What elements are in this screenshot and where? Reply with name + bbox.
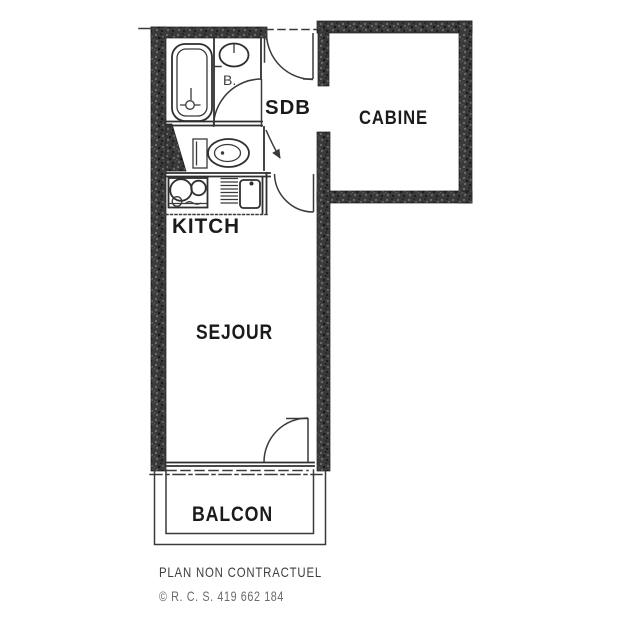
drainboard-icon	[221, 179, 239, 204]
floor-plan: SDB CABINE KITCH SEJOUR BALCON B. PLAN N…	[0, 0, 640, 640]
wall-right	[317, 132, 330, 471]
walls	[151, 21, 472, 471]
room-label-cabine: CABINE	[359, 108, 428, 129]
hall-sejour-door-swing	[275, 174, 314, 212]
disclaimer-text: PLAN NON CONTRACTUEL	[159, 564, 322, 580]
wall-top-bathroom	[151, 27, 267, 38]
room-label-balcon: BALCON	[192, 503, 273, 526]
wall-cabine-right	[459, 21, 472, 203]
wall-cabine-left-upper	[318, 30, 329, 86]
wall-cabine-bottom	[317, 191, 472, 203]
room-label-kitch: KITCH	[172, 215, 240, 238]
sink-icon	[240, 180, 260, 208]
wall-left	[151, 27, 166, 471]
partitions	[139, 29, 322, 475]
stove-icon	[169, 178, 208, 208]
sdb-door-swing	[214, 79, 262, 127]
entry-door-swing	[267, 33, 314, 80]
floor-plan-page: SDB CABINE KITCH SEJOUR BALCON B. PLAN N…	[0, 0, 640, 640]
bathtub-icon	[172, 44, 212, 121]
washbasin-icon	[220, 44, 249, 67]
copyright-text: © R. C. S. 419 662 184	[159, 588, 284, 604]
wall-cabine-top	[317, 21, 472, 33]
bath-annotation: B.	[223, 72, 236, 88]
room-label-sejour: SEJOUR	[196, 321, 273, 344]
room-label-sdb: SDB	[265, 97, 311, 119]
balcony-door-swing	[264, 418, 308, 462]
wall-diagonal-wc	[166, 124, 186, 171]
toilet-icon	[193, 139, 249, 168]
wc-door-swing	[266, 130, 280, 158]
